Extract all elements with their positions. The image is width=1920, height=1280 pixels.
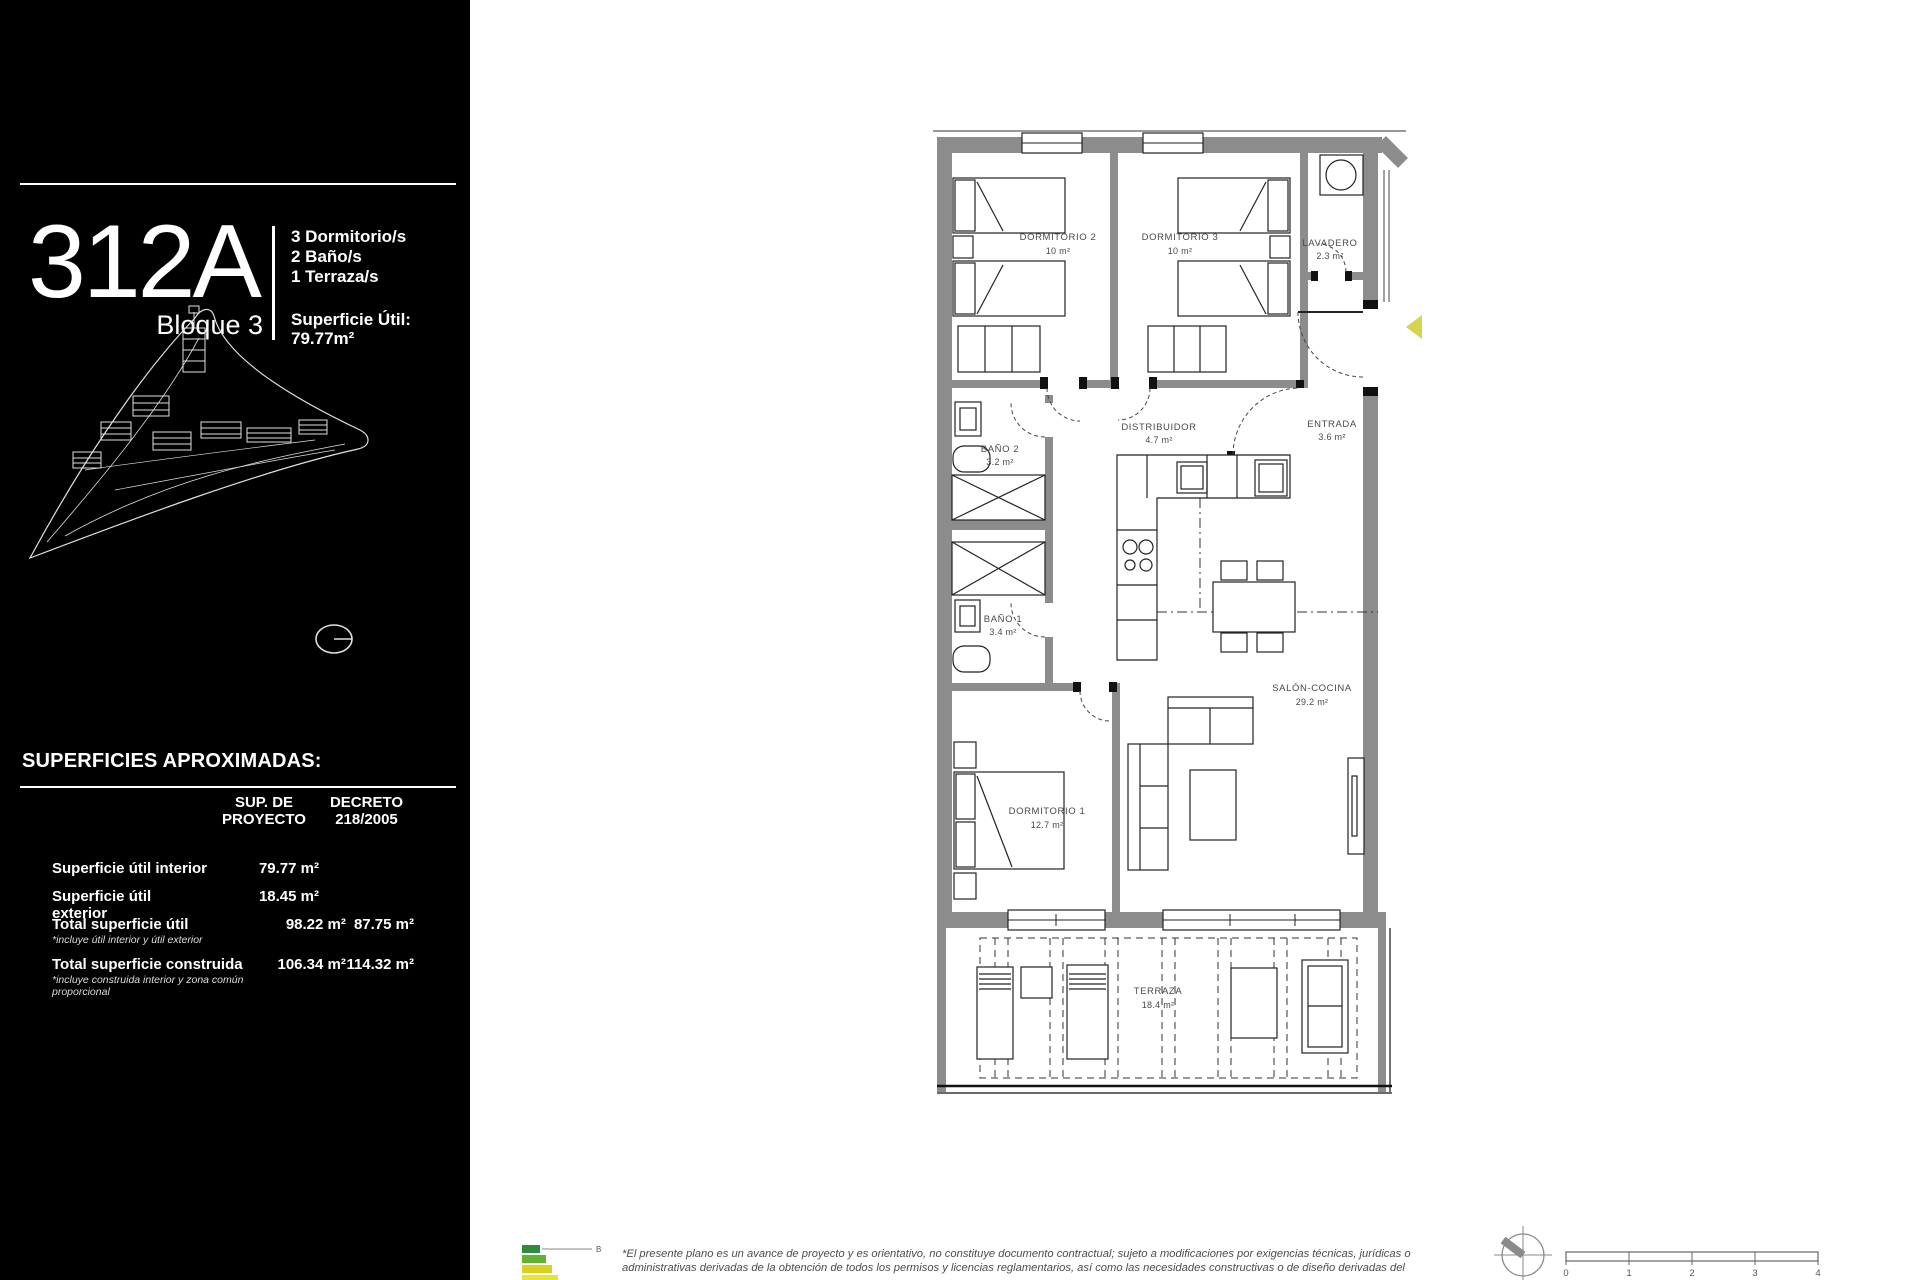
room-label-distribuidor: DISTRIBUIDOR — [1121, 422, 1196, 433]
unit-features: 3 Dormitorio/s 2 Baño/s 1 Terraza/s — [291, 227, 406, 287]
surfaces-table: Superficie útil interior 79.77 m² Superf… — [52, 860, 414, 1030]
table-row: Total superficie útil *incluye útil inte… — [52, 916, 414, 947]
scale-tick-2: 2 — [1689, 1268, 1694, 1279]
room-label-lavadero: LAVADERO — [1302, 238, 1357, 249]
room-area-bano-1: 3.4 m² — [989, 627, 1016, 637]
plan-sheet-page: 312A 3 Dormitorio/s 2 Baño/s 1 Terraza/s… — [0, 0, 1920, 1280]
col-header-decreto: DECRETO 218/2005 — [319, 794, 414, 828]
row-label: Superficie útil interior — [52, 860, 207, 877]
row-proyecto-value: 98.22 m² — [267, 916, 346, 933]
scale-tick-4: 4 — [1815, 1268, 1820, 1279]
room-label-entrada: ENTRADA — [1307, 419, 1357, 430]
room-area-terraza: 18.4 m² — [1142, 1000, 1175, 1010]
surfaces-title: SUPERFICIES APROXIMADAS: — [22, 750, 322, 773]
row-decreto-value: 87.75 m² — [346, 916, 414, 933]
unit-number: 312A — [28, 210, 259, 314]
room-area-dormitorio-1: 12.7 m² — [1031, 820, 1064, 830]
room-area-bano-2: 3.2 m² — [986, 457, 1013, 467]
disclaimer-line-1: *El presente plano es un avance de proye… — [622, 1247, 1432, 1261]
disclaimer: *El presente plano es un avance de proye… — [622, 1247, 1432, 1275]
floor-plan: DORMITORIO 2 10 m² DORMITORIO 3 10 m² LA… — [900, 90, 1460, 1120]
room-label-bano-1: BAÑO 1 — [984, 614, 1022, 625]
table-row: Total superficie construida *incluye con… — [52, 956, 414, 998]
room-area-lavadero: 2.3 m² — [1316, 251, 1343, 261]
row-proyecto-value: 106.34 m² — [267, 956, 346, 973]
row-proyecto-value: 18.45 m² — [209, 888, 319, 905]
sidebar: 312A 3 Dormitorio/s 2 Baño/s 1 Terraza/s… — [0, 0, 470, 1280]
room-label-dormitorio-3: DORMITORIO 3 — [1142, 232, 1219, 243]
feature-bathrooms: 2 Baño/s — [291, 247, 406, 267]
compass-icon — [1488, 1222, 1558, 1280]
col-header-proyecto: SUP. DE PROYECTO — [209, 794, 319, 828]
row-decreto-value: 114.32 m² — [346, 956, 414, 973]
scale-tick-1: 1 — [1626, 1268, 1631, 1279]
room-area-salon-cocina: 29.2 m² — [1296, 697, 1329, 707]
disclaimer-line-2: administrativas derivadas de la obtenció… — [622, 1261, 1432, 1275]
room-label-terraza: TERRAZA — [1134, 986, 1183, 997]
sidebar-top-rule — [20, 183, 456, 185]
room-label-dormitorio-2: DORMITORIO 2 — [1020, 232, 1097, 243]
terrace — [937, 928, 1392, 1093]
scale-bar: 0 1 2 3 4 — [1558, 1246, 1838, 1280]
row-footnote: *incluye útil interior y útil exterior — [52, 935, 267, 947]
feature-terraces: 1 Terraza/s — [291, 267, 406, 287]
room-label-salon-cocina: SALÓN-COCINA — [1272, 683, 1352, 694]
brand-circle-logo — [310, 620, 360, 662]
chamfer-corner — [1381, 141, 1403, 163]
room-area-entrada: 3.6 m² — [1318, 432, 1345, 442]
room-area-dormitorio-2: 10 m² — [1046, 246, 1071, 256]
scale-tick-0: 0 — [1563, 1268, 1568, 1279]
row-label: Total superficie construida — [52, 956, 267, 973]
energy-rating-letter: B — [596, 1245, 601, 1254]
row-footnote: *incluye construida interior y zona comú… — [52, 975, 267, 998]
room-area-dormitorio-3: 10 m² — [1168, 246, 1193, 256]
row-proyecto-value: 79.77 m² — [209, 860, 319, 877]
site-buildings — [73, 306, 327, 468]
scale-tick-3: 3 — [1752, 1268, 1757, 1279]
entrance-arrow-icon — [1406, 315, 1422, 339]
site-plan-wireframe — [15, 300, 375, 590]
room-label-bano-2: BAÑO 2 — [981, 444, 1019, 455]
table-row: Superficie útil interior 79.77 m² — [52, 860, 414, 877]
energy-rating-icon: B — [512, 1241, 632, 1280]
feature-bedrooms: 3 Dormitorio/s — [291, 227, 406, 247]
row-label: Total superficie útil — [52, 916, 267, 933]
room-area-distribuidor: 4.7 m² — [1145, 435, 1172, 445]
surfaces-table-header: SUP. DE PROYECTO DECRETO 218/2005 — [52, 794, 414, 828]
room-label-dormitorio-1: DORMITORIO 1 — [1009, 806, 1086, 817]
table-rule — [20, 786, 456, 788]
